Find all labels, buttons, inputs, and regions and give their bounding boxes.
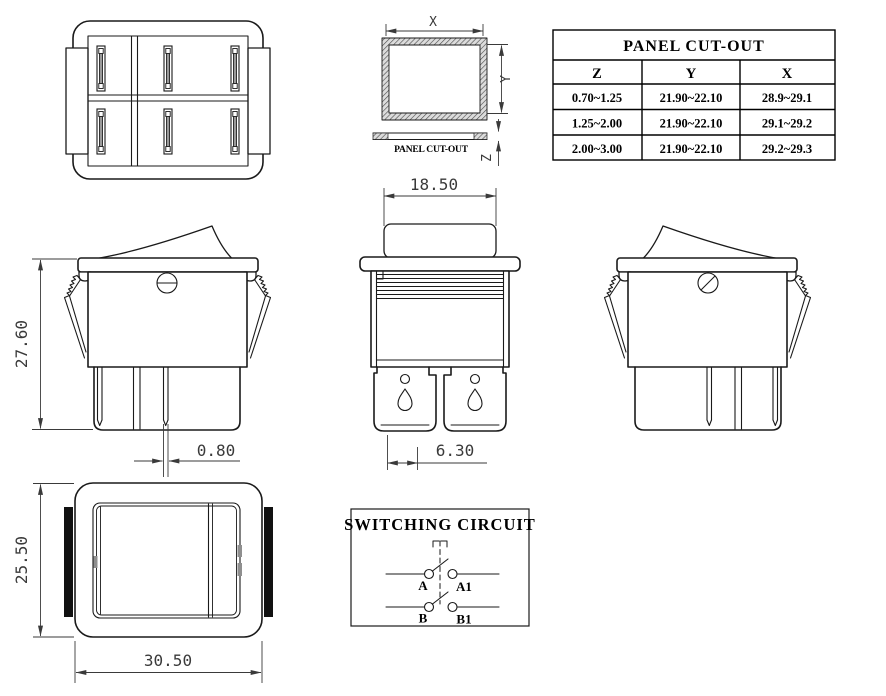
blade-terminal xyxy=(164,46,172,91)
dim-terminal-thickness: 0.80 xyxy=(197,441,236,460)
blade-terminal xyxy=(231,109,239,154)
cutout-caption: PANEL CUT-OUT xyxy=(394,145,469,155)
dim-terminal-width: 6.30 xyxy=(436,441,475,460)
dim-top-width: 30.50 xyxy=(144,651,192,670)
dim-side-height: 27.60 xyxy=(12,320,31,368)
table-cell: 28.9~29.1 xyxy=(762,91,812,105)
cutout-x-label: X xyxy=(429,15,437,30)
side-view-right xyxy=(605,226,811,430)
terminal-slot xyxy=(398,389,412,411)
blade-terminal xyxy=(164,109,172,154)
table-header-x: X xyxy=(782,66,793,82)
side-tab-right xyxy=(248,48,270,154)
panel-cutout-view: X Y PANEL CUT-OUT Z xyxy=(373,15,514,166)
dim-top-height: 25.50 xyxy=(12,536,31,584)
vent-hole xyxy=(471,375,480,384)
dim-rocker-width: 18.50 xyxy=(410,175,458,194)
terminal-label-b: B xyxy=(419,611,428,626)
clip-bar-right xyxy=(264,507,273,617)
switch-body xyxy=(371,271,509,367)
top-view: 25.50 30.50 xyxy=(12,483,273,683)
table-cell: 29.1~29.2 xyxy=(762,117,812,131)
terminal-label-b1: B1 xyxy=(456,612,471,627)
blade-terminal xyxy=(97,46,105,91)
circuit-title: SWITCHING CIRCUIT xyxy=(344,515,536,534)
cutout-y-label: Y xyxy=(499,75,514,83)
vent-hole xyxy=(401,375,410,384)
table-cell: 21.90~22.10 xyxy=(660,142,723,156)
front-view: 18.50 6.30 xyxy=(360,175,520,470)
rocker-button xyxy=(384,224,496,258)
switching-circuit: SWITCHING CIRCUIT A A1 B B1 xyxy=(344,509,536,627)
terminal-housing-right xyxy=(444,367,506,431)
panel-cutout-table: PANEL CUT-OUT Z Y X 0.70~1.25 21.90~22.1… xyxy=(553,30,835,160)
clip-bar-left xyxy=(64,507,73,617)
terminal-label-a: A xyxy=(418,578,428,593)
terminal-housing-left xyxy=(374,367,436,431)
table-cell: 21.90~22.10 xyxy=(660,117,723,131)
table-cell: 29.2~29.3 xyxy=(762,142,812,156)
side-view-left: 27.60 0.80 xyxy=(12,226,271,477)
back-housing-outline xyxy=(73,21,263,179)
table-header-y: Y xyxy=(686,66,697,82)
table-cell: 1.25~2.00 xyxy=(572,117,622,131)
table-title: PANEL CUT-OUT xyxy=(623,38,764,55)
table-cell: 21.90~22.10 xyxy=(660,91,723,105)
rocker-switch-drawing: X Y PANEL CUT-OUT Z PANEL CUT-OUT Z Y X … xyxy=(0,0,886,696)
blade-terminal xyxy=(231,46,239,91)
panel-hatch-ring xyxy=(382,38,487,120)
back-view xyxy=(66,21,270,179)
table-cell: 2.00~3.00 xyxy=(572,142,622,156)
engineering-drawing-page: X Y PANEL CUT-OUT Z PANEL CUT-OUT Z Y X … xyxy=(0,0,886,696)
table-cell: 0.70~1.25 xyxy=(572,91,622,105)
mounting-flange xyxy=(360,257,520,271)
cutout-z-label: Z xyxy=(480,154,495,162)
terminal-label-a1: A1 xyxy=(456,579,472,594)
body-ribs xyxy=(377,275,504,299)
side-tab-left xyxy=(66,48,88,154)
blade-terminal xyxy=(97,109,105,154)
table-header-z: Z xyxy=(592,66,602,82)
terminal-slot xyxy=(468,389,482,411)
